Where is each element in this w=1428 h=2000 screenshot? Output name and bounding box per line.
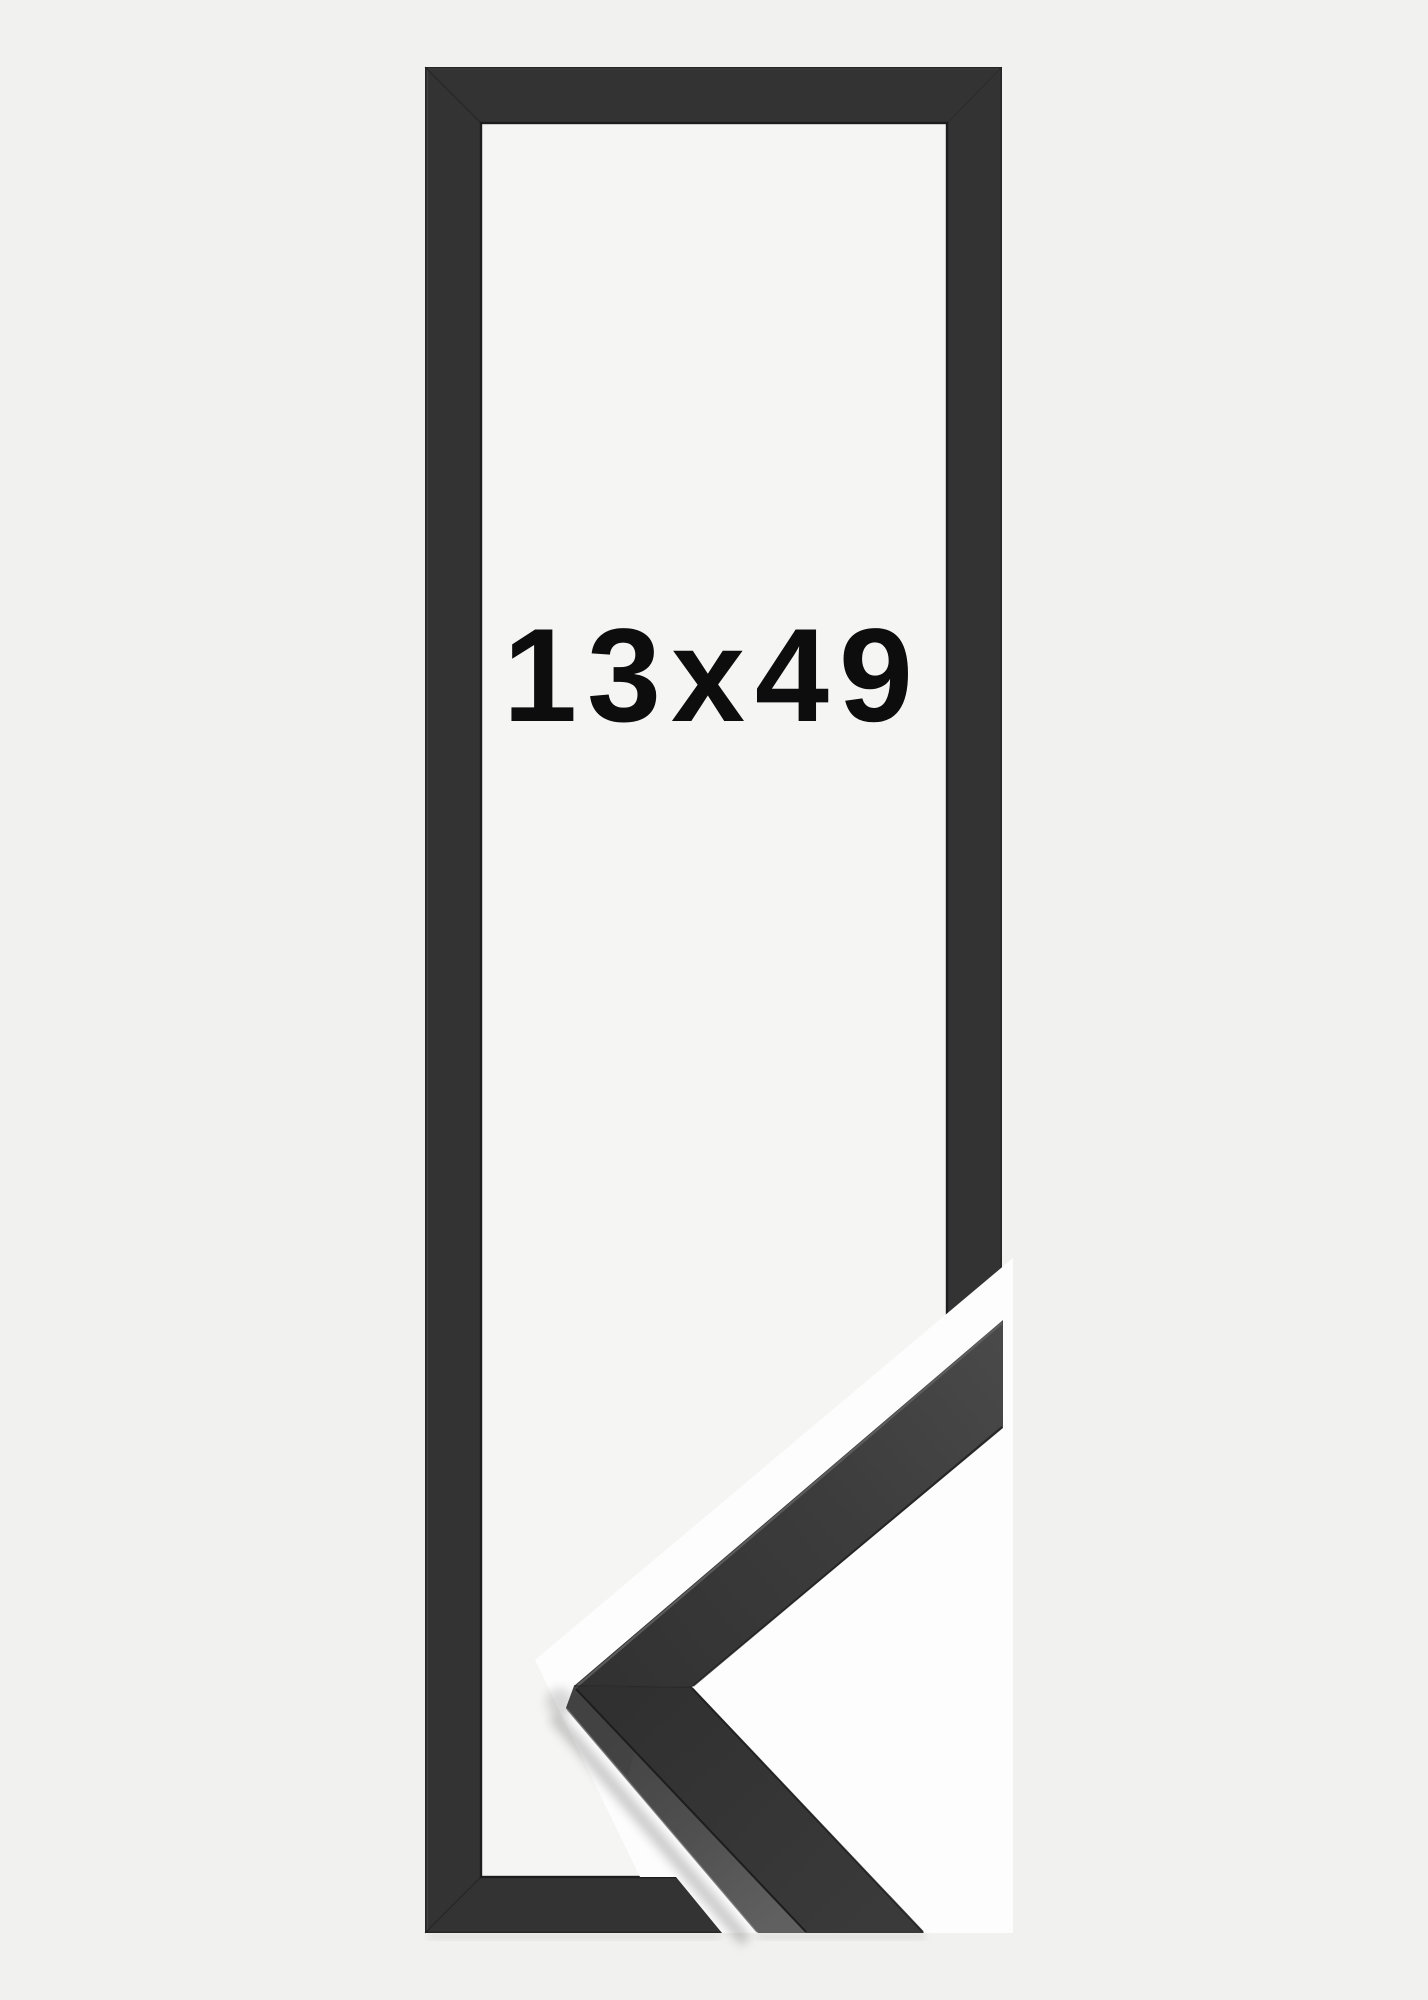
sample-corner-seam (574, 1686, 692, 1687)
frame-bottom-shadow (428, 1934, 720, 1939)
sample-bottom-shadow (757, 1934, 925, 1939)
product-image: 13x49 (0, 0, 1428, 2000)
size-label: 13x49 (503, 602, 923, 750)
product-image-page: 13x49 (0, 0, 1428, 2000)
